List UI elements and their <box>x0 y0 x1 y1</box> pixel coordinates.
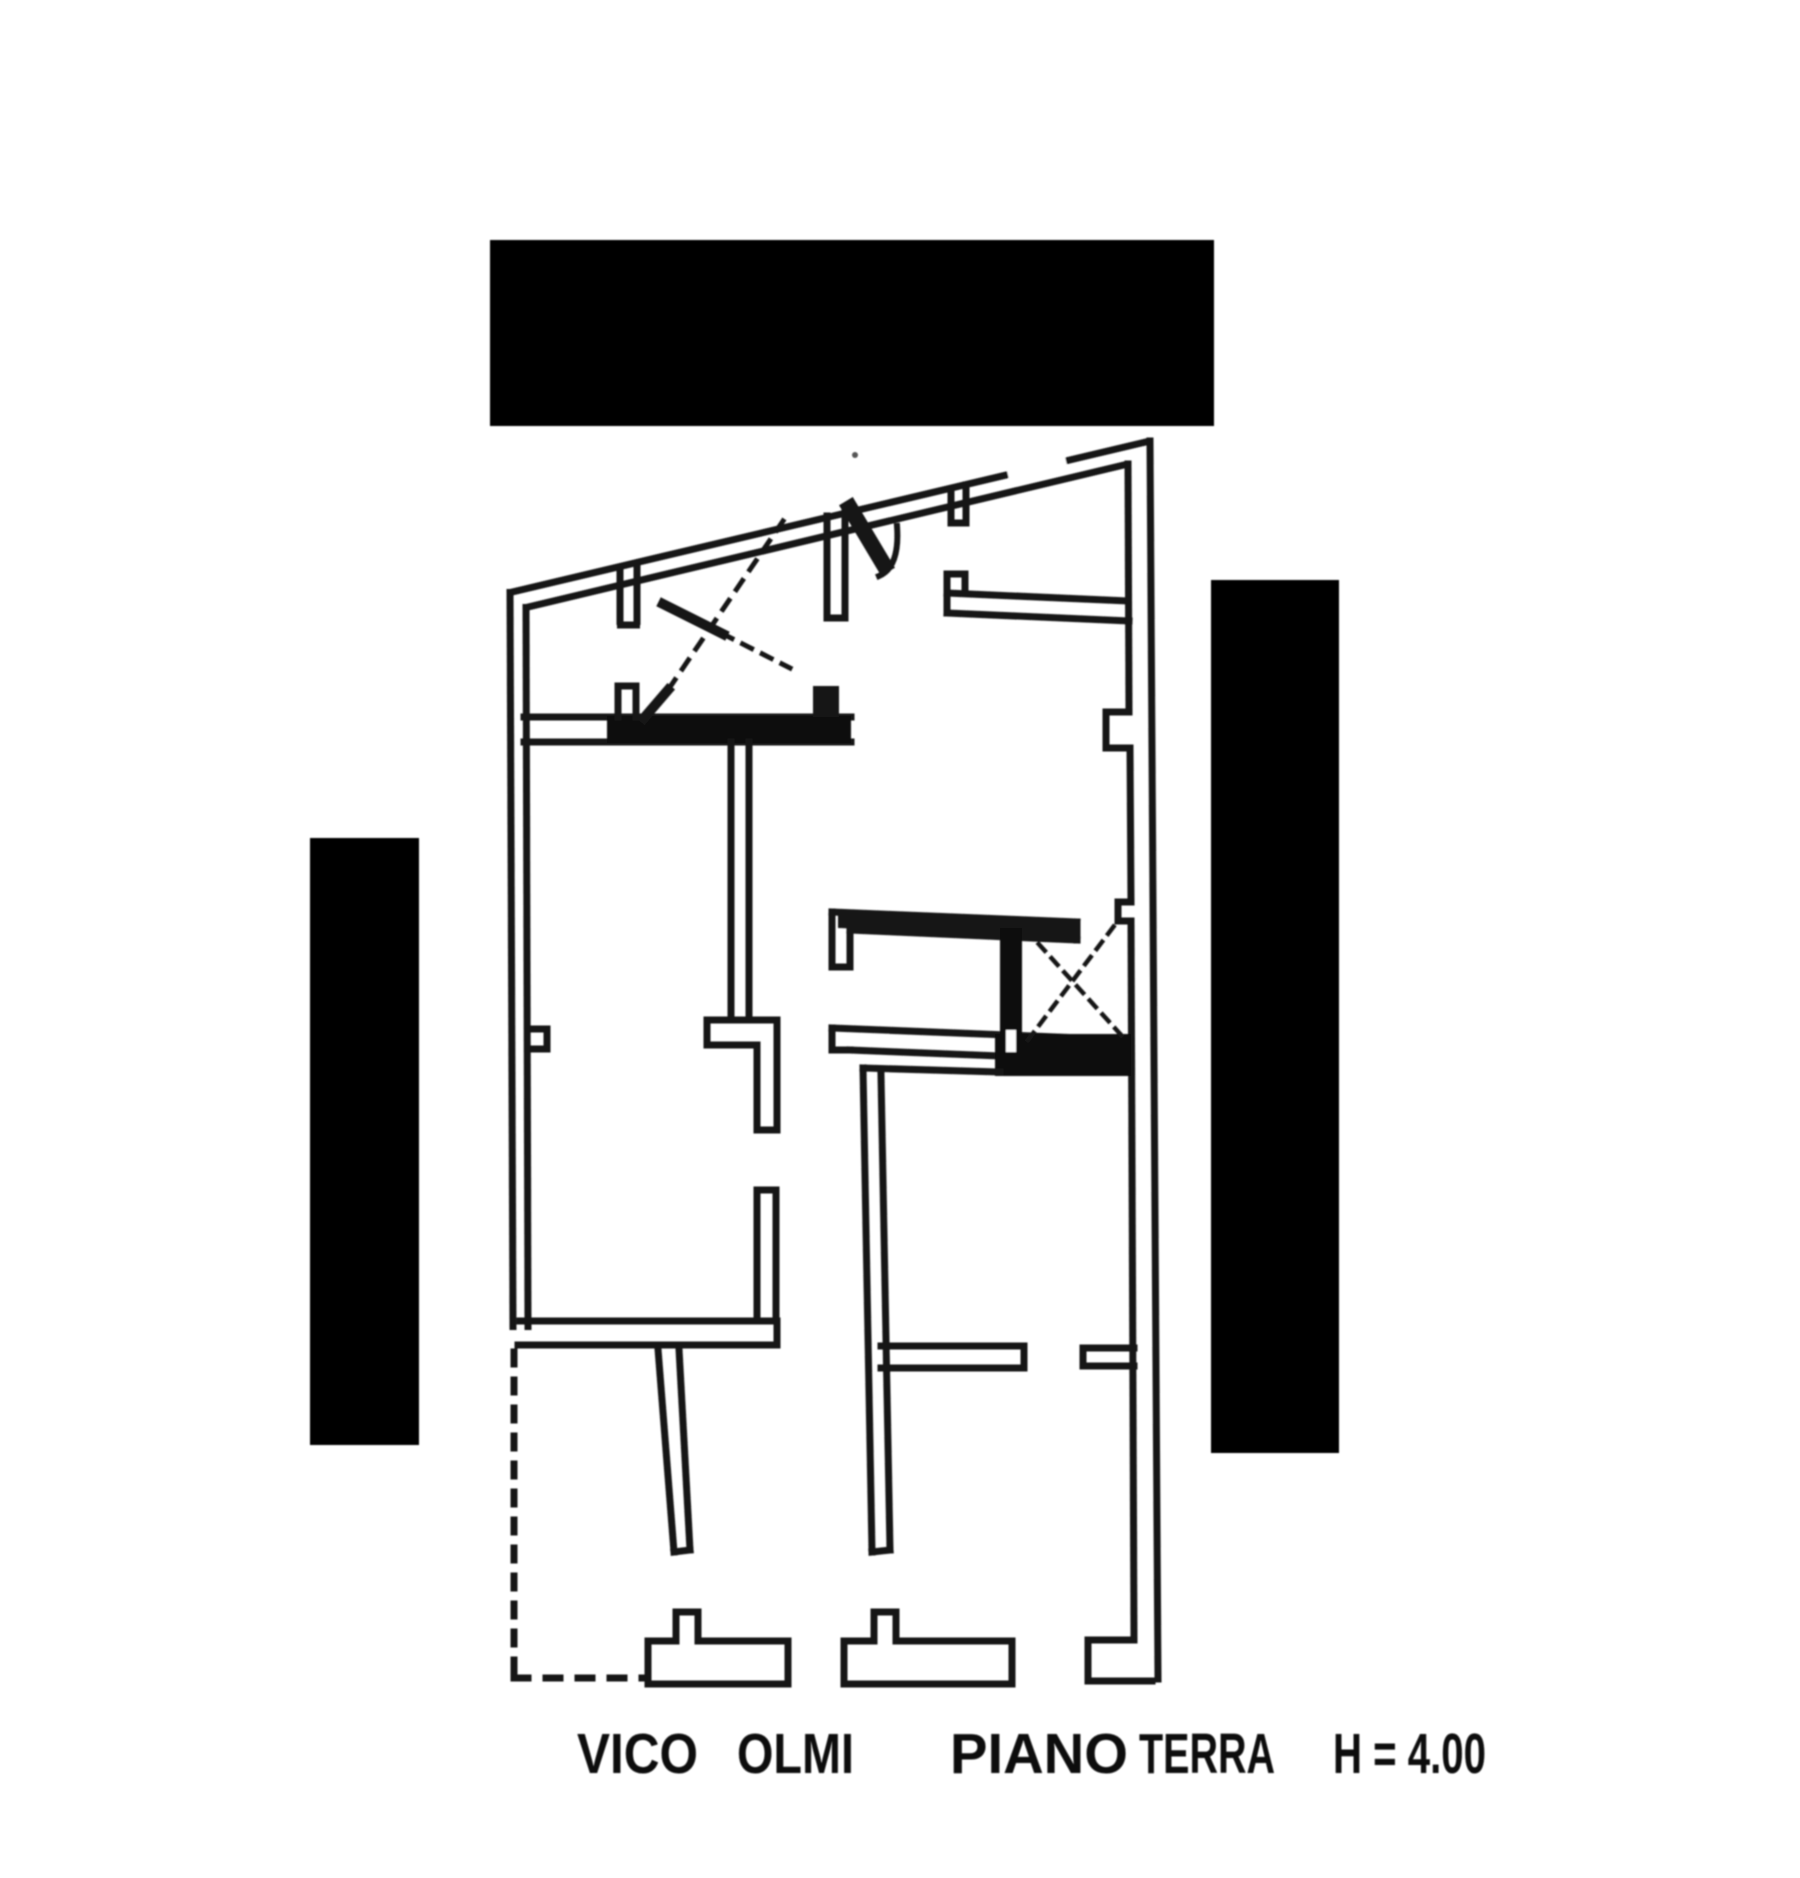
svg-text:H = 4.00: H = 4.00 <box>1333 1722 1486 1786</box>
svg-text:PIANO: PIANO <box>950 1722 1128 1786</box>
svg-text:OLMI: OLMI <box>737 1722 854 1786</box>
svg-text:VICO: VICO <box>577 1722 698 1786</box>
svg-text:TERRA: TERRA <box>1139 1722 1275 1786</box>
